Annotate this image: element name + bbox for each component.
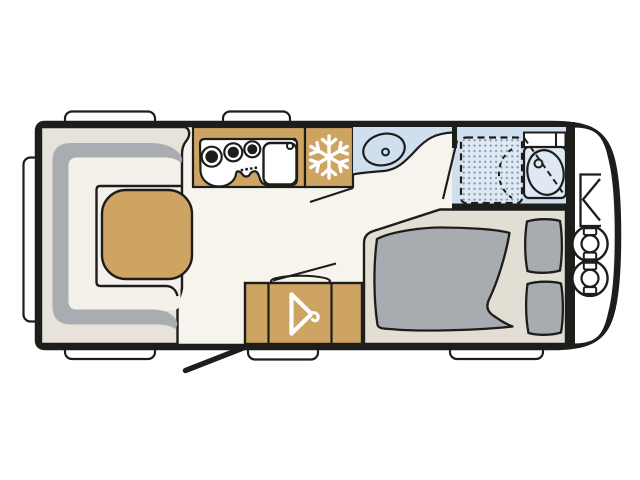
sink-faucet (287, 143, 293, 149)
lounge (41, 127, 192, 344)
floorplan-svg (0, 0, 640, 480)
dinette-table (102, 190, 192, 279)
duvet (374, 228, 512, 331)
pillow-bottom (526, 282, 563, 335)
shower-tray-dots (461, 138, 522, 204)
caravan-floorplan (0, 0, 640, 480)
cistern-cabinet-left (524, 133, 556, 148)
faucet-dot (293, 138, 296, 141)
gas-bottle-icon (572, 261, 607, 296)
refrigerator (305, 127, 353, 187)
cistern-cabinet-right (556, 133, 566, 148)
gas-bottle-icon (572, 226, 607, 261)
bedroom (364, 210, 566, 345)
wardrobe-body (245, 283, 362, 344)
kitchen (193, 127, 305, 187)
pillow-top (525, 219, 562, 273)
